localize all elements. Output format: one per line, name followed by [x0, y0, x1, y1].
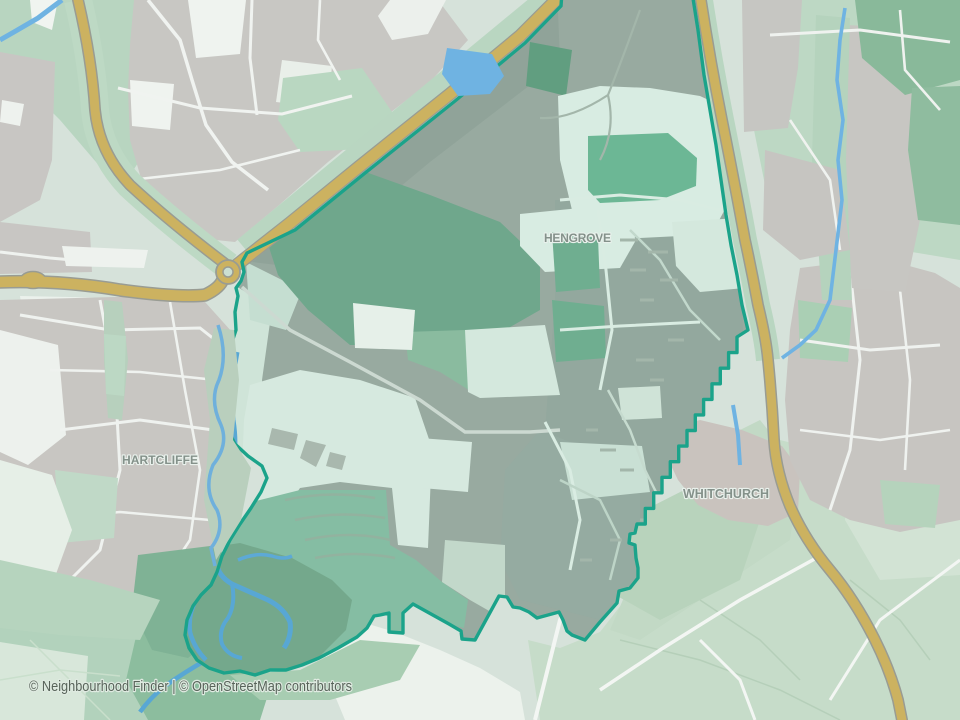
svg-text:WHITCHURCH: WHITCHURCH [683, 487, 769, 501]
svg-text:© Neighbourhood Finder | © Ope: © Neighbourhood Finder | © OpenStreetMap… [29, 678, 352, 695]
svg-text:HENGROVE: HENGROVE [544, 231, 611, 245]
svg-text:HARTCLIFFE: HARTCLIFFE [122, 453, 198, 467]
